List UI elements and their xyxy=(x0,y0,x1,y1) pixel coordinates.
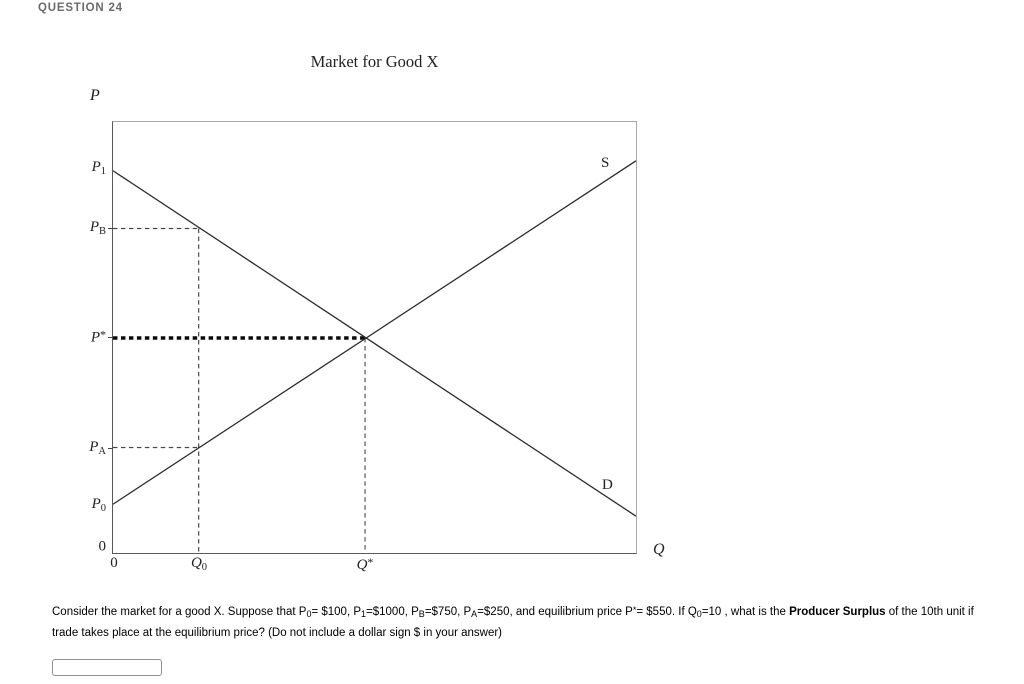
y-axis-label: P xyxy=(90,87,100,105)
ytick-p1: P1 xyxy=(58,159,106,177)
ytick-pb: PB xyxy=(58,219,106,237)
origin-x-tick: 0 xyxy=(84,555,144,572)
supply-demand-plot xyxy=(113,122,636,553)
xtick-q0: Q0 xyxy=(169,555,229,573)
question-text: Consider the market for a good X. Suppos… xyxy=(52,601,998,643)
pa-axis-tick xyxy=(108,448,113,449)
origin-y-tick: 0 xyxy=(58,539,106,556)
xtick-qstar: Q* xyxy=(335,555,395,574)
pb-axis-tick xyxy=(108,228,113,229)
ytick-p0: P0 xyxy=(58,496,106,514)
demand-curve-label: D xyxy=(602,477,613,494)
ytick-pa: PA xyxy=(58,439,106,457)
producer-surplus-emphasis: Producer Surplus xyxy=(789,606,886,618)
demand-curve xyxy=(113,171,636,516)
question-header: QUESTION 24 xyxy=(38,2,123,14)
supply-curve xyxy=(113,161,636,504)
quiz-question-page: QUESTION 24 Market for Good X P Q S D P1… xyxy=(0,0,1024,684)
pstar-axis-tick xyxy=(108,337,113,338)
x-axis-label: Q xyxy=(653,541,665,559)
plot-area xyxy=(112,121,637,554)
supply-curve-label: S xyxy=(601,155,609,172)
figure-title: Market for Good X xyxy=(112,52,637,72)
ytick-pstar: P* xyxy=(58,328,106,347)
answer-input[interactable] xyxy=(52,659,162,676)
